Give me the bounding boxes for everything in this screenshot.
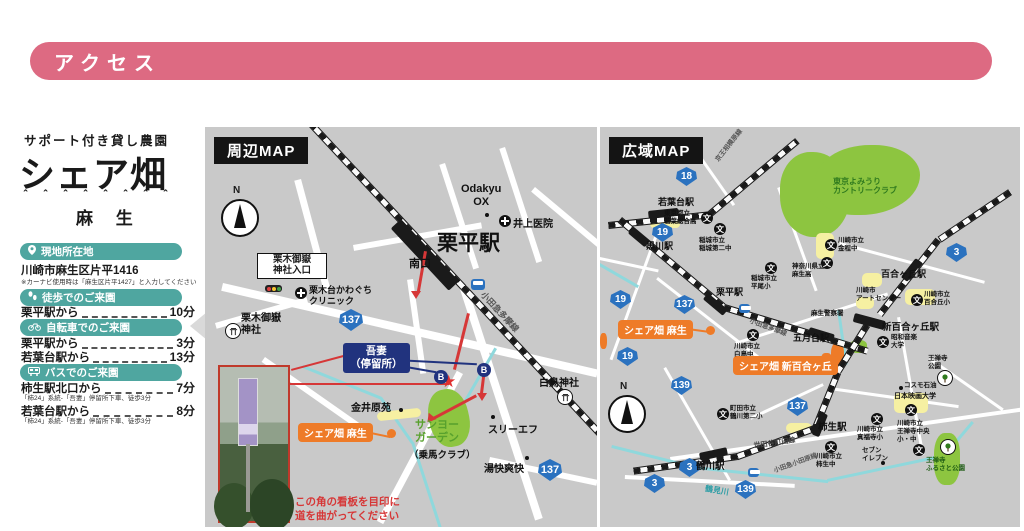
kanahodo-label: 川崎市立 金程中 — [838, 237, 864, 253]
school-icon: 文 — [701, 212, 713, 224]
wakaba-hs-label: 東京都立 若葉総合高 — [664, 210, 697, 226]
page-title: アクセス — [30, 42, 992, 80]
station-tsurukawa: 鶴川駅 — [696, 458, 725, 472]
compass-icon — [608, 395, 646, 433]
school-icon: 文 — [913, 444, 925, 456]
route-shield-19: 19 — [617, 347, 638, 366]
sanyo-garden-sub-label: （乗馬クラブ） — [409, 447, 476, 461]
bus-stop-icon: B — [434, 370, 448, 384]
route-shield-139: 139 — [671, 376, 692, 395]
intersection-sign: 栗木御嶽 神社入口 — [257, 253, 327, 279]
park-tree-icon — [940, 439, 956, 455]
train-icon — [471, 279, 485, 290]
showa-music-label: 昭和音楽 大学 — [891, 334, 917, 350]
train-icon — [748, 468, 759, 477]
asao-police-label: 麻生警察署 — [811, 310, 844, 318]
school-icon: 文 — [911, 294, 923, 306]
school-icon: 文 — [877, 336, 889, 348]
sharefarm-asao-dot — [706, 326, 715, 335]
local-map-title: 周辺MAP — [214, 137, 308, 164]
traffic-light-icon — [265, 285, 282, 292]
bus-time: 7分 — [176, 379, 195, 396]
school-icon: 文 — [825, 239, 837, 251]
south-exit-label: 南口 — [409, 255, 431, 271]
callout-line — [289, 383, 449, 385]
inagi-daini-label: 稲城市立 稲城第二中 — [699, 237, 732, 253]
dotted-leader — [82, 308, 167, 318]
sharefarm-area — [600, 333, 607, 349]
keio-line-label: 京王相模原線 — [712, 127, 744, 163]
station-kakio: 柿生駅 — [818, 419, 847, 433]
clinic-cross-icon — [499, 215, 511, 227]
sharefarm-asao-dot — [387, 429, 396, 438]
odawara-line-label: 小田急小田原線 — [772, 449, 818, 474]
address-note: ※カーナビ使用時は「麻生区片平1427」と入力してください — [21, 276, 197, 286]
mitake-shrine-label: 栗木御嶽 神社 — [241, 313, 281, 337]
poi-dot — [485, 213, 489, 217]
azuma-bus-stop-sign: 吾妻 （停留所） — [343, 343, 410, 373]
walk-row: 栗平駅から 10分 — [21, 303, 195, 320]
section-bicycle-heading: 自転車でのご来園 — [46, 320, 130, 335]
route-shield-3: 3 — [946, 243, 967, 262]
bus-stop-icon: B — [477, 363, 491, 377]
poi-dot — [899, 386, 903, 390]
seven-eleven-label: セブン イレブン — [862, 447, 888, 463]
station-satsukidai: 五月台駅 — [793, 331, 829, 344]
station-yurigaoka: 百合ヶ丘駅 — [881, 267, 926, 280]
nihon-eiga-label: 日本映画大学 — [894, 393, 936, 401]
kanaibara-label: 金井原苑 — [351, 399, 391, 414]
school-icon: 文 — [714, 223, 726, 235]
setagaya-machida-road-label: 世田谷町田線 — [753, 435, 796, 451]
callout-line — [291, 355, 345, 371]
bus-route-note: 「柿24」系統-「吾妻」停留所下車、徒歩3分 — [21, 392, 151, 402]
three-f-label: スリーエフ — [488, 421, 538, 436]
route-arrow — [411, 291, 421, 299]
section-address: 現地所在地 — [20, 243, 182, 260]
kakio-jhs-label: 川崎市立 柿生中 — [816, 453, 842, 469]
bus-route-note: 「柿24」系統-「吾妻」停留所下車、徒歩3分 — [21, 415, 151, 425]
railway-odawara — [938, 189, 1012, 242]
compass-n-label: N — [620, 381, 627, 392]
school-icon: 文 — [825, 441, 837, 453]
kurihira-station-label: 栗平駅 — [437, 227, 500, 257]
landmark-area — [862, 273, 882, 287]
walk-from: 栗平駅から — [21, 304, 79, 320]
route-arrow — [477, 393, 487, 401]
brand-decoration: ＾＾＾＾＾＾＾＾ — [20, 188, 180, 204]
cosmo-oil-label: コスモ石油 — [904, 382, 937, 390]
compass-icon — [221, 199, 259, 237]
hirao-es-label: 稲城市立 平尾小 — [751, 275, 777, 291]
ozenji-chuo-label: 川崎市立 王禅寺中央 小・中 — [897, 420, 930, 443]
wide-map-title: 広域MAP — [609, 137, 703, 164]
ozenji-park-label: 王禅寺 公園 — [928, 355, 948, 371]
route-shield-137: 137 — [674, 295, 695, 314]
signboard-note: この角の看板を目印に 道を曲がってください — [295, 495, 400, 523]
poi-dot — [525, 456, 529, 460]
inoue-clinic-label: 井上医院 — [513, 215, 553, 230]
sharefarm-asao-tag: シェア畑 麻生 — [618, 320, 693, 339]
art-center-label: 川崎市 アートセンター — [856, 287, 901, 303]
station-shin-yurigaoka: 新百合ヶ丘駅 — [882, 319, 939, 333]
sharefarm-asao-tag: シェア畑 麻生 — [298, 423, 373, 442]
yurigaoka-es-label: 川崎市立 百合丘小 — [924, 291, 950, 307]
school-icon: 文 — [717, 408, 729, 420]
clinic-cross-icon — [295, 287, 307, 299]
location-pin-icon — [28, 245, 36, 258]
yukai-sokai-label: 湯快爽快 — [484, 460, 524, 475]
bus-time: 8分 — [176, 402, 195, 419]
shrine-torii-icon — [557, 389, 573, 405]
station-kurokawa: 黒川駅 — [646, 239, 673, 252]
kawaguchi-clinic-label: 栗木台かわぐち クリニック — [309, 285, 372, 306]
country-club-label: 東京よみうり カントリークラブ — [833, 177, 897, 196]
train-icon — [739, 304, 750, 313]
shinpukuji-label: 川崎市立 真福寺小 — [857, 426, 883, 442]
signboard-photo — [218, 365, 290, 523]
furusato-park-label: 王禅寺 ふるさと公園 — [926, 457, 965, 473]
sanyo-garden-label: サンヨー ガーデン — [415, 419, 459, 445]
school-icon: 文 — [747, 329, 759, 341]
poi-dot — [881, 461, 885, 465]
signboard — [238, 378, 258, 446]
compass-n-label: N — [233, 185, 240, 196]
sharefarm-shinyuri-tag: シェア畑 新百合ヶ丘 — [733, 356, 838, 375]
brand-location: 麻 生 — [76, 204, 142, 229]
tsurumi-river-label: 鶴見川 — [704, 483, 730, 498]
school-icon: 文 — [765, 262, 777, 274]
bicycle-from: 若葉台駅から — [21, 349, 90, 365]
school-icon: 文 — [905, 404, 917, 416]
section-address-heading: 現地所在地 — [41, 244, 94, 259]
dotted-leader — [93, 353, 167, 363]
bicycle-row: 若葉台駅から 13分 — [21, 348, 195, 365]
asao-hs-label: 神奈川県立 麻生高 — [792, 263, 825, 279]
section-bus-heading: バスでのご来園 — [45, 365, 119, 380]
station-wakabadai: 若葉台駅 — [658, 195, 694, 208]
bus-icon — [28, 367, 40, 379]
poi-dot — [399, 408, 403, 412]
park-tree-icon — [937, 370, 953, 386]
station-kurihira: 栗平駅 — [716, 285, 743, 298]
bicycle-icon — [28, 322, 41, 334]
tsurukawa-daini-label: 町田市立 鶴川第二小 — [730, 405, 763, 421]
road — [499, 147, 542, 263]
route-shield-18: 18 — [676, 167, 697, 186]
shrine-torii-icon — [225, 323, 241, 339]
local-map: ★ 周辺MAP N 栗木御嶽 神社入口 栗木台かわぐち クリニック 137 栗木… — [205, 127, 597, 527]
wide-map: 広域MAP N 18 19 19 19 137 139 137 3 3 3 13… — [600, 127, 1020, 527]
poi-dot — [491, 415, 495, 419]
shiratori-shrine-label: 白鳥神社 — [539, 374, 579, 389]
bicycle-time: 13分 — [170, 348, 195, 365]
school-icon: 文 — [871, 413, 883, 425]
odakyu-ox-label: Odakyu OX — [461, 183, 501, 209]
